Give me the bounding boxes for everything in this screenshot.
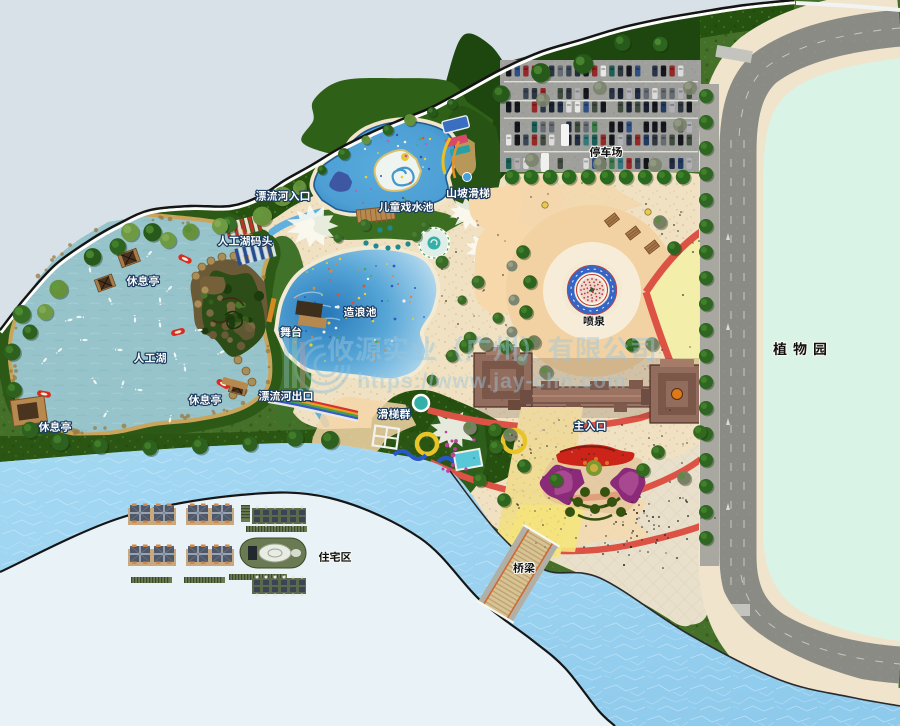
svg-text:https://www.jay-chn.com: https://www.jay-chn.com <box>357 370 627 393</box>
